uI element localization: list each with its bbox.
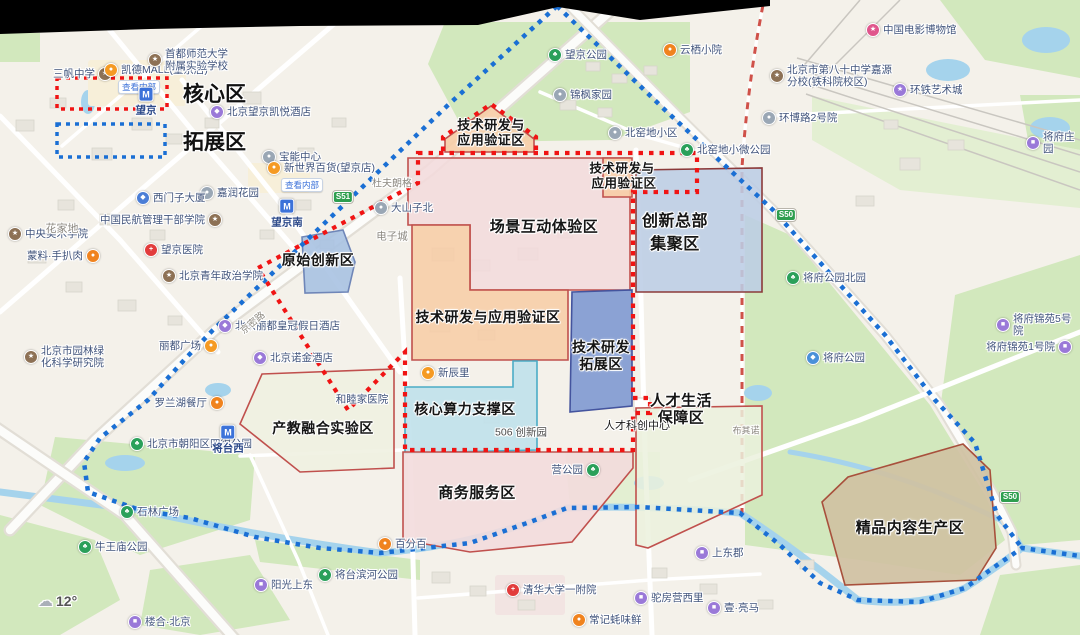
poi-label: 罗兰湖餐厅 [155, 397, 208, 409]
mall-icon[interactable]: ● [104, 63, 118, 77]
school-icon[interactable]: ★ [148, 53, 162, 67]
residential-icon[interactable]: ■ [1026, 136, 1040, 150]
gray-icon[interactable]: ● [374, 201, 388, 215]
mall-icon[interactable]: ● [421, 366, 435, 380]
school-icon[interactable]: ★ [770, 69, 784, 83]
poi-marker[interactable]: ♣将台滨河公园 [318, 568, 398, 582]
poi-marker[interactable]: ★北京市第八十中学嘉源 分校(铁科院校区) [770, 64, 892, 88]
park-icon[interactable]: ♣ [130, 437, 144, 451]
school-icon[interactable]: ★ [8, 227, 22, 241]
poi-label: 清华大学一附院 [523, 584, 597, 596]
poi-label: 将府公园 [823, 352, 865, 364]
poi-marker[interactable]: ●百分百 [378, 537, 427, 551]
poi-label: 锦枫家园 [570, 89, 612, 101]
poi-label: 丽都广场 [159, 340, 201, 352]
residential-icon[interactable]: ■ [634, 591, 648, 605]
mall-icon[interactable]: ● [267, 161, 281, 175]
poi-label: 驼房营西里 [651, 592, 704, 604]
food-icon[interactable]: ● [86, 249, 100, 263]
art-icon[interactable]: ★ [893, 83, 907, 97]
park-icon[interactable]: ♣ [680, 143, 694, 157]
poi-label: 新世界百货(望京店) [284, 162, 375, 174]
hotel-icon[interactable]: ◆ [218, 319, 232, 333]
hotel-icon[interactable]: ◆ [253, 351, 267, 365]
poi-marker[interactable]: ♣将府公园北园 [786, 271, 866, 285]
hospital-icon[interactable]: + [144, 243, 158, 257]
poi-label: 中国电影博物馆 [883, 24, 957, 36]
mall-icon[interactable]: ● [204, 339, 218, 353]
poi-marker[interactable]: ♣营公园 [552, 463, 601, 477]
museum-icon[interactable]: ★ [866, 23, 880, 37]
school-icon[interactable]: ★ [208, 213, 222, 227]
poi-marker[interactable]: ●大山子北 [374, 201, 433, 215]
food-icon[interactable]: ● [663, 43, 677, 57]
map-screenshot: ☁ 12° 场景互动体验区技术研发与应用验证区技术研发与应用验证区创新总部集聚区… [0, 0, 1080, 635]
poi-label: 北窑地小微公园 [697, 144, 771, 156]
poi-marker[interactable]: ●北窑地小区 [608, 126, 678, 140]
poi-label: 石林广场 [137, 506, 179, 518]
poi-marker[interactable]: ●环博路2号院 [762, 111, 837, 125]
residential-icon[interactable]: ■ [1058, 340, 1072, 354]
poi-marker[interactable]: ♣北窑地小微公园 [680, 143, 771, 157]
poi-marker[interactable]: ■壹·亮马 [707, 601, 759, 615]
poi-label: 将府公园北园 [803, 272, 866, 284]
poi-label: 新辰里 [438, 367, 470, 379]
scenic-icon[interactable]: ◆ [806, 351, 820, 365]
poi-marker[interactable]: ◆将府公园 [806, 351, 865, 365]
poi-label: 百分百 [395, 538, 427, 550]
poi-label: 中央美术学院 [25, 228, 88, 240]
poi-label: 北京市第八十中学嘉源 分校(铁科院校区) [787, 64, 892, 88]
tech-rd-expansion-zone [570, 290, 632, 412]
poi-label: 阳光上东 [271, 579, 313, 591]
tech-rd-validation-small [603, 158, 632, 197]
gray-icon[interactable]: ● [553, 88, 567, 102]
poi-label: 首都师范大学 附属实验学校 [165, 48, 228, 72]
park-icon[interactable]: ♣ [548, 48, 562, 62]
food-icon[interactable]: ● [572, 613, 586, 627]
poi-marker[interactable]: ★中国民航管理干部学院 [100, 213, 222, 227]
metro-station-label: 将台西 [212, 441, 244, 456]
poi-label: 将府锦苑5号院 [1013, 313, 1080, 337]
metro-station-icon[interactable]: M望京 [136, 87, 157, 118]
hospital-icon[interactable]: + [506, 583, 520, 597]
metro-station-label: 望京南 [271, 215, 303, 230]
poi-label: 北京青年政治学院 [179, 270, 263, 282]
poi-label: 环铁艺术城 [910, 84, 963, 96]
poi-marker[interactable]: ●罗兰湖餐厅 [155, 396, 225, 410]
poi-marker[interactable]: ◆北京丽都皇冠假日酒店 [218, 319, 340, 333]
poi-label: 大山子北 [391, 202, 433, 214]
poi-marker[interactable]: ★中央美术学院 [8, 227, 88, 241]
park-icon[interactable]: ♣ [786, 271, 800, 285]
view-indoor-tag[interactable]: 查看内部 [281, 178, 323, 192]
poi-label: 蒙料·手扒肉 [27, 250, 83, 262]
food-icon[interactable]: ● [210, 396, 224, 410]
poi-marker[interactable]: ●锦枫家园 [553, 88, 612, 102]
residential-icon[interactable]: ■ [254, 578, 268, 592]
gray-icon[interactable]: ● [762, 111, 776, 125]
poi-marker[interactable]: +清华大学一附院 [506, 583, 597, 597]
park-icon[interactable]: ♣ [120, 505, 134, 519]
hotel-icon[interactable]: ◆ [210, 105, 224, 119]
poi-marker[interactable]: ■阳光上东 [254, 578, 313, 592]
metro-station-icon[interactable]: M将台西 [212, 425, 244, 456]
metro-icon[interactable]: M [280, 199, 295, 214]
poi-label: 上东郡 [712, 547, 744, 559]
poi-marker[interactable]: ■将府庄园 [1026, 131, 1080, 155]
poi-marker[interactable]: ●蒙料·手扒肉 [27, 249, 100, 263]
poi-label: 壹·亮马 [724, 602, 759, 614]
poi-marker[interactable]: +望京医院 [144, 243, 203, 257]
poi-marker[interactable]: ●嘉润花园 [200, 186, 259, 200]
poi-label: 常记蚝味鲜 [589, 614, 642, 626]
poi-marker[interactable]: ●丽都广场 [159, 339, 218, 353]
poi-label: 北京诺金酒店 [270, 352, 333, 364]
park-icon[interactable]: ♣ [78, 540, 92, 554]
poi-label: 嘉润花园 [217, 187, 259, 199]
poi-label: 西门子大厦 [153, 192, 206, 204]
poi-marker[interactable]: ◆北京诺金酒店 [253, 351, 333, 365]
poi-marker[interactable]: ★北京市园林绿 化科学研究院 [24, 345, 104, 369]
school-icon[interactable]: ★ [162, 269, 176, 283]
residential-icon[interactable]: ■ [695, 546, 709, 560]
poi-marker[interactable]: ◆北京望京凯悦酒店 [210, 105, 311, 119]
food-icon[interactable]: ● [378, 537, 392, 551]
poi-marker[interactable]: ●新世界百货(望京店)查看内部 [267, 161, 375, 193]
poi-label: 环博路2号院 [779, 112, 837, 124]
poi-label: 北京望京凯悦酒店 [227, 106, 311, 118]
gray-icon[interactable]: ● [608, 126, 622, 140]
poi-label: 云栖小院 [680, 44, 722, 56]
poi-marker[interactable]: ♣牛王庙公园 [78, 540, 148, 554]
residential-icon[interactable]: ■ [128, 615, 142, 629]
poi-marker[interactable]: ●常记蚝味鲜 [572, 613, 642, 627]
poi-label: 牛王庙公园 [95, 541, 148, 553]
poi-label: 三帆中学 [53, 68, 95, 80]
company-icon[interactable]: ◆ [136, 191, 150, 205]
innovation-hq-zone [636, 168, 762, 292]
residential-icon[interactable]: ■ [996, 318, 1010, 332]
poi-label: 北京市园林绿 化科学研究院 [41, 345, 104, 369]
poi-label: 将府庄园 [1043, 131, 1080, 155]
poi-marker[interactable]: ★首都师范大学 附属实验学校 [148, 48, 228, 72]
poi-marker[interactable]: ★中国电影博物馆 [866, 23, 957, 37]
poi-marker[interactable]: ■上东郡 [695, 546, 744, 560]
park-icon[interactable]: ♣ [318, 568, 332, 582]
poi-marker[interactable]: ■楼合·北京 [128, 615, 191, 629]
school-icon[interactable]: ★ [24, 350, 38, 364]
poi-label: 楼合·北京 [145, 616, 191, 628]
poi-marker[interactable]: ◆西门子大厦 [136, 191, 206, 205]
metro-station-label: 望京 [136, 103, 157, 118]
poi-marker[interactable]: ★环铁艺术城 [893, 83, 963, 97]
poi-label: 望京公园 [565, 49, 607, 61]
poi-marker[interactable]: ●新辰里 [421, 366, 470, 380]
poi-label: 营公园 [552, 464, 584, 476]
poi-label: 中国民航管理干部学院 [100, 214, 205, 226]
metro-station-icon[interactable]: M望京南 [271, 199, 303, 230]
poi-label: 望京医院 [161, 244, 203, 256]
poi-marker[interactable]: ♣石林广场 [120, 505, 179, 519]
metro-icon[interactable]: M [221, 425, 236, 440]
metro-icon[interactable]: M [139, 87, 154, 102]
poi-marker[interactable]: ■驼房营西里 [634, 591, 704, 605]
poi-marker[interactable]: ■将府锦苑5号院 [996, 313, 1080, 337]
poi-marker[interactable]: ●云栖小院 [663, 43, 722, 57]
poi-label: 北窑地小区 [625, 127, 678, 139]
poi-marker[interactable]: ■将府锦苑1号院 [986, 340, 1072, 354]
poi-label: 将台滨河公园 [335, 569, 398, 581]
poi-marker[interactable]: ♣望京公园 [548, 48, 607, 62]
poi-marker[interactable]: ★北京青年政治学院 [162, 269, 263, 283]
residential-icon[interactable]: ■ [707, 601, 721, 615]
poi-label: 将府锦苑1号院 [986, 341, 1055, 353]
park-icon[interactable]: ♣ [586, 463, 600, 477]
poi-label: 北京丽都皇冠假日酒店 [235, 320, 340, 332]
